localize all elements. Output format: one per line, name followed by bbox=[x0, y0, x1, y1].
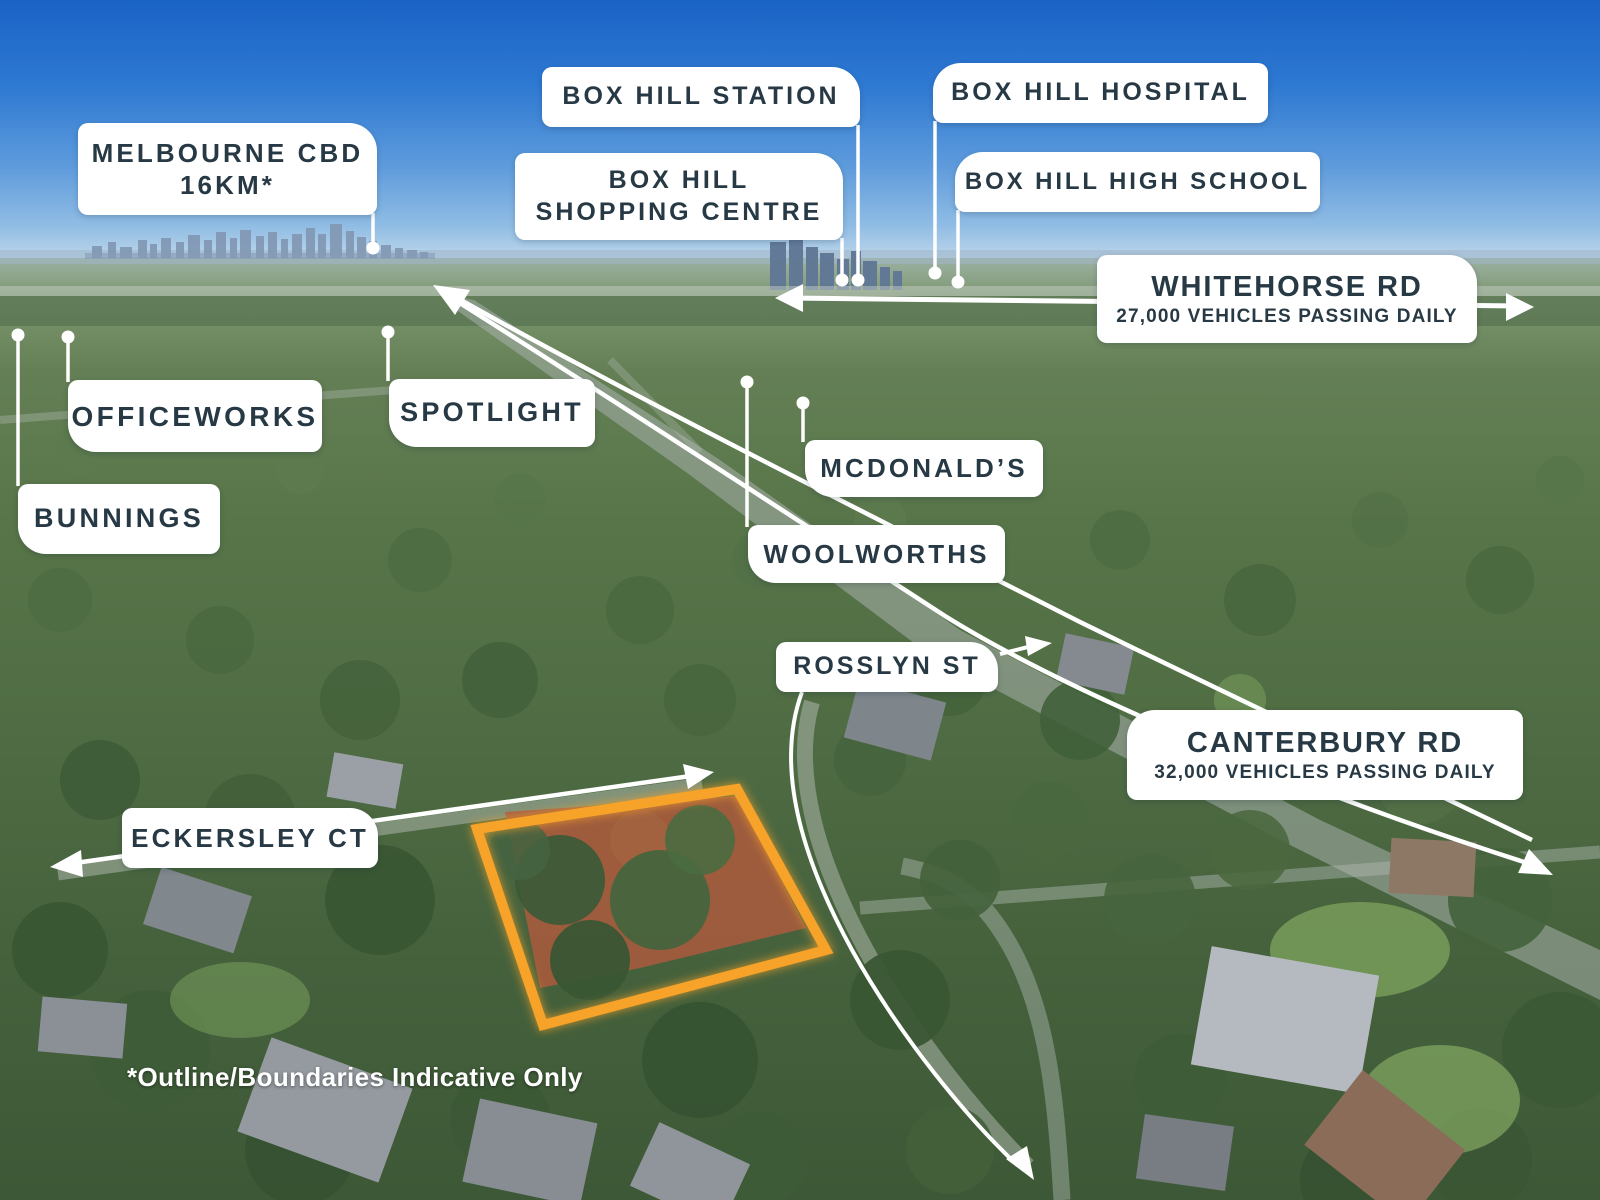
label-text: ROSSLYN ST bbox=[793, 651, 980, 682]
label-box-hill-hospital: BOX HILL HOSPITAL bbox=[933, 63, 1268, 123]
label-officeworks: OFFICEWORKS bbox=[68, 380, 322, 452]
label-spotlight: SPOTLIGHT bbox=[389, 379, 595, 447]
label-box-hill-station: BOX HILL STATION bbox=[542, 67, 860, 127]
label-text: SHOPPING CENTRE bbox=[536, 197, 823, 228]
connector-dot bbox=[836, 274, 849, 287]
label-whitehorse-rd: WHITEHORSE RD 27,000 VEHICLES PASSING DA… bbox=[1097, 255, 1477, 343]
label-box-hill-shopping-centre: BOX HILL SHOPPING CENTRE bbox=[515, 153, 843, 240]
label-text: WOOLWORTHS bbox=[763, 538, 989, 571]
label-text: ECKERSLEY CT bbox=[131, 822, 369, 855]
label-text: BOX HILL STATION bbox=[562, 81, 839, 112]
melbourne-skyline bbox=[85, 224, 435, 259]
connector-dot bbox=[797, 397, 810, 410]
label-box-hill-high-school: BOX HILL HIGH SCHOOL bbox=[955, 152, 1320, 212]
label-eckersley-ct: ECKERSLEY CT bbox=[122, 808, 378, 868]
label-text: MCDONALD’S bbox=[820, 452, 1027, 485]
label-text: BOX HILL bbox=[609, 165, 750, 196]
road-traffic-count: 27,000 VEHICLES PASSING DAILY bbox=[1116, 305, 1457, 329]
connector-dot bbox=[741, 376, 754, 389]
road-traffic-count: 32,000 VEHICLES PASSING DAILY bbox=[1154, 761, 1495, 785]
connector-dot bbox=[382, 326, 395, 339]
label-text: BOX HILL HOSPITAL bbox=[951, 77, 1250, 108]
connector-dot bbox=[367, 242, 380, 255]
road-name: WHITEHORSE RD bbox=[1151, 269, 1422, 305]
label-rosslyn-st: ROSSLYN ST bbox=[776, 642, 998, 692]
connector-dot bbox=[62, 331, 75, 344]
label-text: 16KM* bbox=[180, 169, 275, 202]
connector-dot bbox=[12, 329, 25, 342]
connector-dot bbox=[952, 276, 965, 289]
label-canterbury-rd: CANTERBURY RD 32,000 VEHICLES PASSING DA… bbox=[1127, 710, 1523, 800]
label-melbourne-cbd: MELBOURNE CBD 16KM* bbox=[78, 123, 377, 215]
boundaries-disclaimer: *Outline/Boundaries Indicative Only bbox=[127, 1062, 583, 1093]
label-woolworths: WOOLWORTHS bbox=[748, 525, 1005, 583]
road-name: CANTERBURY RD bbox=[1187, 725, 1463, 761]
label-text: MELBOURNE CBD bbox=[92, 137, 364, 170]
label-mcdonalds: MCDONALD’S bbox=[805, 440, 1043, 497]
connector-dot bbox=[929, 267, 942, 280]
label-text: OFFICEWORKS bbox=[72, 399, 319, 434]
label-text: BOX HILL HIGH SCHOOL bbox=[965, 167, 1310, 197]
connector-dot bbox=[852, 274, 865, 287]
label-text: SPOTLIGHT bbox=[400, 396, 584, 430]
arrow-right-icon bbox=[1025, 636, 1052, 656]
label-bunnings: BUNNINGS bbox=[18, 484, 220, 554]
label-text: BUNNINGS bbox=[34, 502, 204, 536]
aerial-location-map: MELBOURNE CBD 16KM* BOX HILL STATION BOX… bbox=[0, 0, 1600, 1200]
